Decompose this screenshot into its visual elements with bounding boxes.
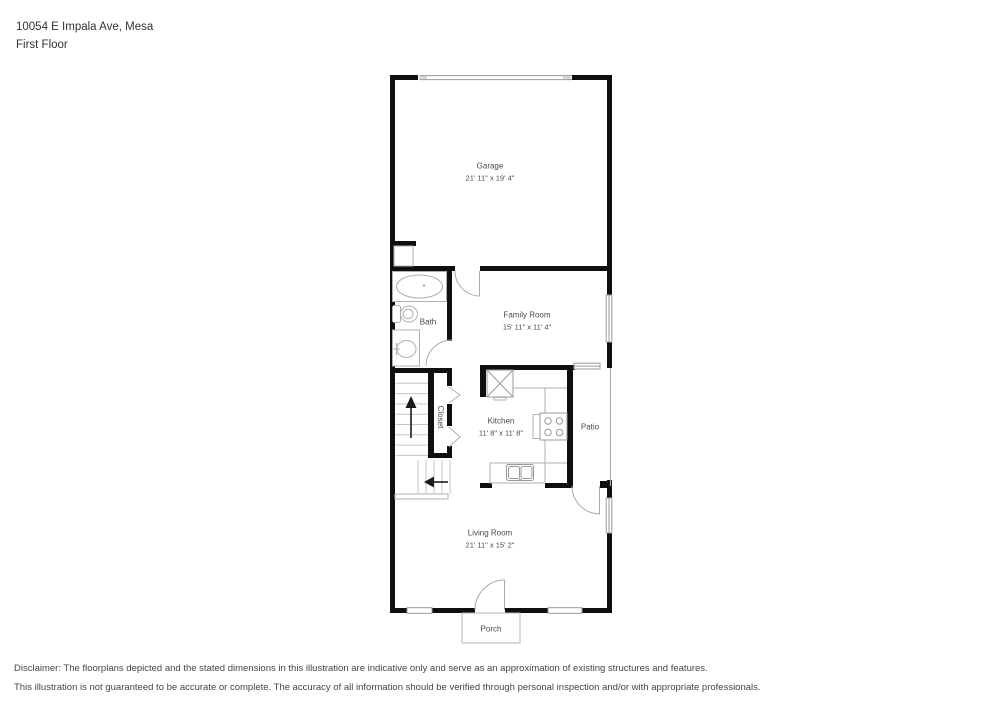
room-label-porch: Porch	[481, 623, 502, 635]
wall-segment	[480, 365, 486, 397]
patio-door-arc	[572, 486, 600, 514]
wall-segment	[567, 365, 573, 488]
stairs-up-arrow-icon	[406, 396, 417, 438]
room-name: Closet	[434, 406, 446, 429]
room-label-kitchen: Kitchen 11' 8" x 11' 8"	[479, 416, 523, 439]
room-label-family-room: Family Room 15' 11" x 11' 4"	[503, 310, 551, 333]
wall-segment	[428, 373, 434, 458]
wall-segment	[447, 373, 452, 386]
disclaimer-line-1: Disclaimer: The floorplans depicted and …	[14, 660, 761, 679]
garage-nook	[394, 246, 413, 266]
room-label-bath: Bath	[420, 316, 436, 328]
room-name: Family Room	[503, 310, 551, 322]
bath-door-arc	[426, 340, 452, 366]
room-name: Porch	[481, 623, 502, 635]
wall-segment	[607, 75, 612, 295]
window	[407, 608, 432, 614]
disclaimer-line-2: This illustration is not guaranteed to b…	[14, 679, 761, 698]
room-dims: 21' 11" x 15' 2"	[466, 539, 515, 551]
room-label-garage: Garage 21' 11" x 19' 4"	[466, 161, 515, 184]
toilet-icon	[393, 306, 418, 323]
room-label-closet: Closet	[434, 406, 446, 429]
wall-segment	[447, 446, 452, 455]
wall-segment	[582, 608, 612, 613]
wall-segment	[480, 266, 612, 271]
room-dims: 11' 8" x 11' 8"	[479, 427, 523, 439]
stair-landing	[395, 494, 448, 499]
room-name: Kitchen	[479, 416, 523, 428]
wall-segment	[505, 608, 548, 613]
stairs-left-arrow-icon	[424, 477, 448, 488]
room-label-patio: Patio	[581, 421, 599, 433]
pantry-icon	[487, 370, 513, 400]
room-name: Patio	[581, 421, 599, 433]
floor-plan-page: 10054 E Impala Ave, Mesa First Floor	[0, 0, 1000, 707]
wall-segment	[432, 608, 475, 613]
floor-plan: Garage 21' 11" x 19' 4" Family Room 15' …	[0, 0, 1000, 707]
room-dims: 15' 11" x 11' 4"	[503, 321, 551, 333]
room-name: Bath	[420, 316, 436, 328]
wall-segment	[395, 368, 452, 373]
wall-segment	[607, 533, 612, 613]
bathtub-icon	[393, 272, 447, 302]
wall-segment	[390, 266, 455, 271]
wall-segment	[390, 241, 416, 246]
wall-segment	[545, 483, 573, 488]
wall-segment	[480, 483, 492, 488]
wall-segment	[390, 608, 407, 613]
room-name: Garage	[466, 161, 515, 173]
wall-segment	[447, 271, 452, 341]
wall-segment	[480, 365, 575, 370]
bath-sink-icon	[393, 330, 420, 366]
wall-segment	[607, 342, 612, 368]
room-label-living-room: Living Room 21' 11" x 15' 2"	[466, 528, 515, 551]
kitchen-sink-icon	[507, 465, 534, 482]
room-name: Living Room	[466, 528, 515, 540]
garage-door	[418, 75, 572, 81]
floor-plan-drawing	[0, 0, 1000, 707]
front-door-arc	[475, 580, 505, 610]
window	[548, 608, 582, 614]
stove-icon	[533, 413, 567, 440]
wall-segment	[447, 404, 452, 426]
room-dims: 21' 11" x 19' 4"	[466, 172, 515, 184]
wall-segment	[572, 75, 612, 80]
disclaimer: Disclaimer: The floorplans depicted and …	[14, 660, 761, 697]
garage-entry-door-arc	[455, 271, 480, 296]
